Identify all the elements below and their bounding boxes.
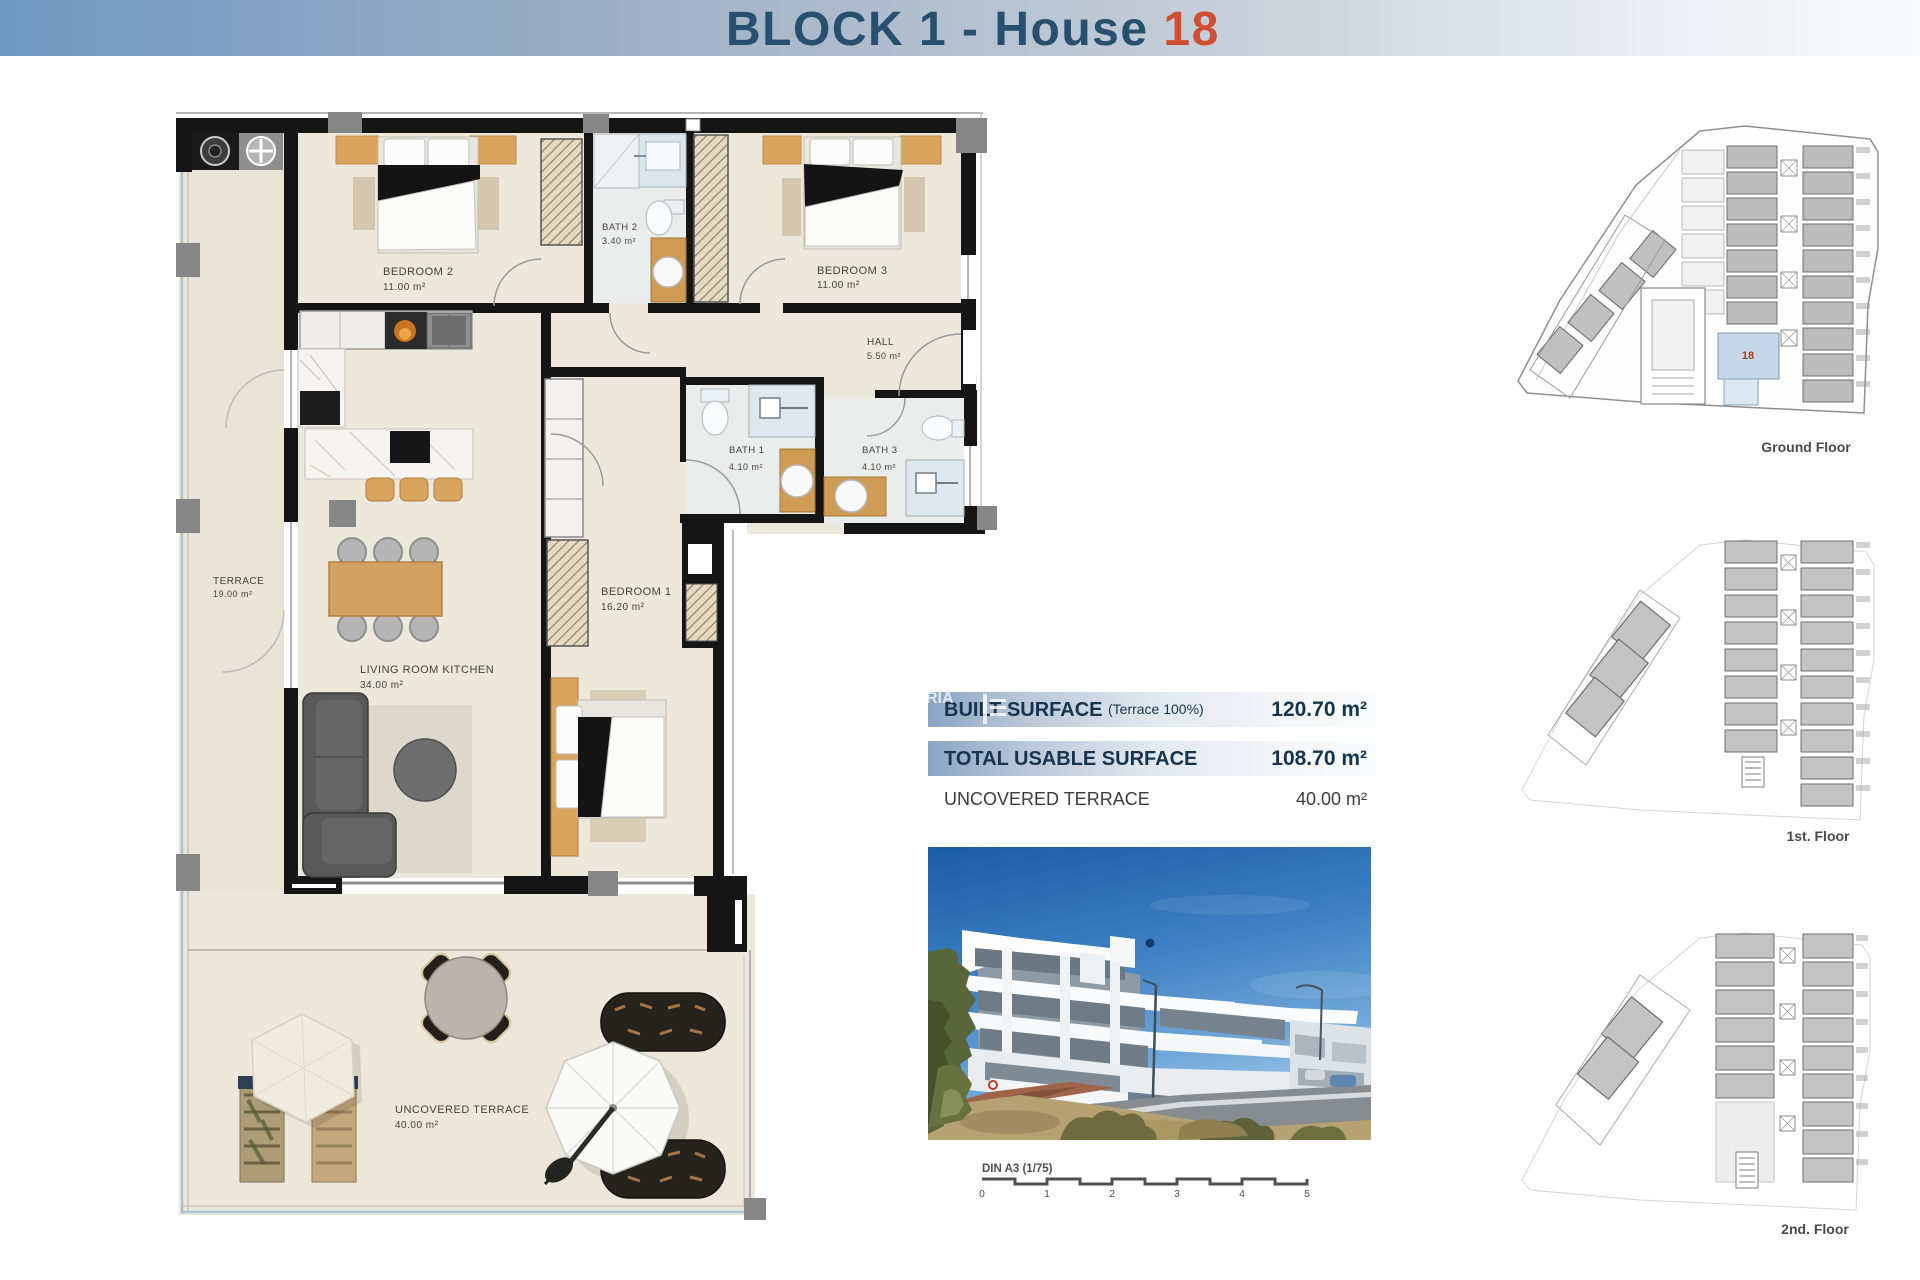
svg-text:5: 5 (1304, 1189, 1310, 1200)
svg-text:40.00 m²: 40.00 m² (395, 1120, 439, 1131)
svg-text:TERRACE: TERRACE (213, 576, 264, 587)
svg-text:BEDROOM 3: BEDROOM 3 (817, 265, 888, 277)
svg-text:UNCOVERED TERRACE: UNCOVERED TERRACE (944, 789, 1150, 809)
svg-text:HALL: HALL (867, 337, 894, 348)
svg-text:16.20 m²: 16.20 m² (601, 602, 645, 613)
svg-text:108.70 m²: 108.70 m² (1271, 747, 1367, 770)
svg-text:UNCOVERED TERRACE: UNCOVERED TERRACE (395, 1104, 529, 1116)
svg-text:120.70 m²: 120.70 m² (1271, 698, 1367, 721)
svg-text:DIN A3 (1/75): DIN A3 (1/75) (982, 1163, 1053, 1175)
svg-text:TOTAL USABLE SURFACE: TOTAL USABLE SURFACE (944, 748, 1197, 770)
svg-text:19.00 m²: 19.00 m² (213, 589, 253, 599)
svg-text:40.00 m²: 40.00 m² (1296, 789, 1367, 809)
svg-text:11.00 m²: 11.00 m² (817, 280, 860, 291)
svg-text:34.00 m²: 34.00 m² (360, 680, 404, 691)
svg-text:3.40 m²: 3.40 m² (602, 236, 636, 246)
svg-text:4.10 m²: 4.10 m² (862, 462, 896, 472)
svg-text:2: 2 (1109, 1189, 1115, 1200)
svg-text:5.50 m²: 5.50 m² (867, 351, 901, 361)
svg-text:1st. Floor: 1st. Floor (1786, 828, 1850, 844)
svg-text:4.10 m²: 4.10 m² (729, 462, 763, 472)
svg-text:0: 0 (979, 1189, 985, 1200)
svg-text:18: 18 (1742, 350, 1754, 362)
svg-text:BATH 2: BATH 2 (602, 222, 638, 233)
svg-text:2nd. Floor: 2nd. Floor (1781, 1221, 1849, 1237)
svg-text:BEDROOM 2: BEDROOM 2 (383, 266, 454, 278)
svg-text:RIA: RIA (926, 690, 954, 707)
svg-text:BATH 3: BATH 3 (862, 445, 898, 456)
svg-text:BUILT SURFACE: BUILT SURFACE (944, 699, 1103, 721)
svg-text:Ground Floor: Ground Floor (1761, 439, 1851, 455)
svg-text:LIVING ROOM KITCHEN: LIVING ROOM KITCHEN (360, 664, 494, 676)
svg-text:4: 4 (1239, 1189, 1245, 1200)
svg-text:BEDROOM 1: BEDROOM 1 (601, 586, 672, 598)
svg-text:1: 1 (1044, 1189, 1050, 1200)
svg-text:11.00 m²: 11.00 m² (383, 282, 426, 293)
svg-text:3: 3 (1174, 1189, 1180, 1200)
svg-text:BATH 1: BATH 1 (729, 445, 765, 456)
svg-text:BLOCK 1 - House 18: BLOCK 1 - House 18 (726, 3, 1220, 56)
svg-text:(Terrace 100%): (Terrace 100%) (1108, 701, 1204, 717)
